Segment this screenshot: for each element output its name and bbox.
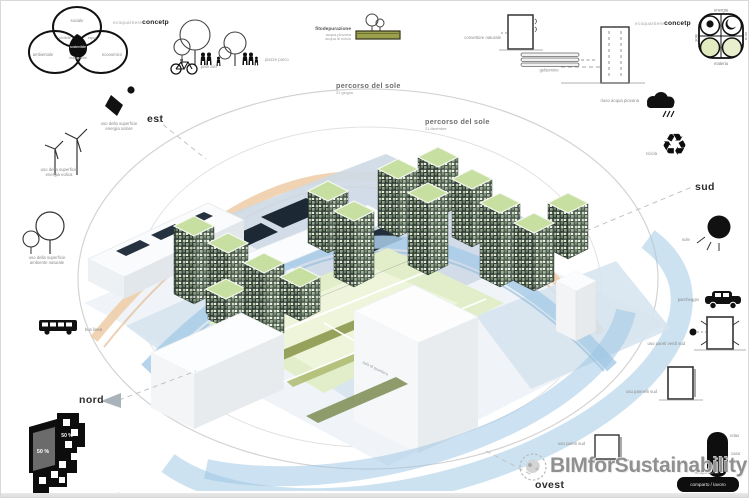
rainwater-label: riuso acqua piovana xyxy=(585,98,639,103)
plan-pct-b: 50 % xyxy=(61,433,73,439)
south-green-wall-icon xyxy=(686,311,748,357)
venn-left-label: ambientale xyxy=(33,52,54,57)
concept-label-top-left: ecoquartiereconcetp xyxy=(113,11,169,29)
bim-logo-icon xyxy=(517,451,549,483)
compass-sud: sud xyxy=(695,181,715,193)
sun-path-winter-label: percorso del sole 21 dicembre xyxy=(425,117,490,131)
venn-center-label: sostenibile xyxy=(70,45,86,49)
bike-icon xyxy=(169,56,199,75)
eco-district-concept-poster: sala di quartiere sociale vivibile equo … xyxy=(0,0,749,498)
wind-label: uso della superficie energia eolica xyxy=(29,167,89,178)
south-wall-bottom-label: uso pareti sud xyxy=(547,441,585,446)
venn-top-label: sociale xyxy=(70,18,84,23)
ventilation-tower-icon xyxy=(561,23,645,89)
bottom-edge-strip xyxy=(1,493,749,498)
pill-label-relax: relax xyxy=(730,433,739,438)
compass-nord: nord xyxy=(79,394,104,406)
convector-label: convettore naturale xyxy=(453,35,501,40)
car-icon xyxy=(701,289,745,311)
parking-label: parcheggio xyxy=(657,297,699,302)
south-panels-icon xyxy=(659,365,703,405)
nord-arrow xyxy=(101,393,121,408)
rain-cloud-icon xyxy=(642,91,680,121)
matrix-top-label: energia xyxy=(714,8,729,13)
natural-convector-icon xyxy=(499,13,543,55)
sun-path-summer-label: percorso del sole 21 giugno xyxy=(336,81,401,95)
park-label: piazze parco xyxy=(265,57,289,62)
venn-cross-bottom-label: realizzabile xyxy=(69,56,87,60)
recycle-label: ricicla xyxy=(621,151,657,156)
south-walls-label: uso pareti verdi sud xyxy=(629,341,685,346)
watermark-text: BIMforSustainability xyxy=(550,454,747,478)
bike-label: park bici xyxy=(201,64,217,69)
matrix-left-label: sole xyxy=(695,33,699,41)
venn-cross-right-label: equo xyxy=(88,36,96,40)
recycle-icon: ♻ xyxy=(661,131,688,161)
bus-icon xyxy=(37,317,83,337)
sun-icon xyxy=(691,211,741,253)
masterplan-render: sala di quartiere xyxy=(56,71,696,491)
jasmine-label: gelsomino xyxy=(539,68,559,73)
compass-est: est xyxy=(147,113,163,125)
matrix-right-label: luna xyxy=(744,32,747,41)
sun-label: sole xyxy=(682,237,690,242)
bus-label: bus linea xyxy=(85,327,102,332)
venn-right-label: economico xyxy=(102,52,123,57)
matrix-bottom-label: materia xyxy=(714,61,729,66)
phyto-label-block: fitodepurazione acqua piovana acqua di r… xyxy=(301,27,351,42)
nature-label: uso della superficie ambiente naturale xyxy=(15,255,79,266)
program-pill-horizontal: comparto / lavoro xyxy=(677,477,739,492)
white-slab-big: sala di quartiere xyxy=(354,285,478,453)
solar-panel-icon xyxy=(101,85,141,119)
south-panels-label: uso pannelli sud xyxy=(611,389,657,394)
nature-tree-icon xyxy=(17,211,73,255)
plan-pct-a: 50 % xyxy=(37,449,49,455)
phyto-basin-icon xyxy=(353,13,403,43)
energy-matrix-diagram: energia sole luna materia xyxy=(695,5,747,69)
site-plan-diagram: 50 % 50 % xyxy=(27,413,91,495)
venn-cross-left-label: vivibile xyxy=(59,36,70,40)
